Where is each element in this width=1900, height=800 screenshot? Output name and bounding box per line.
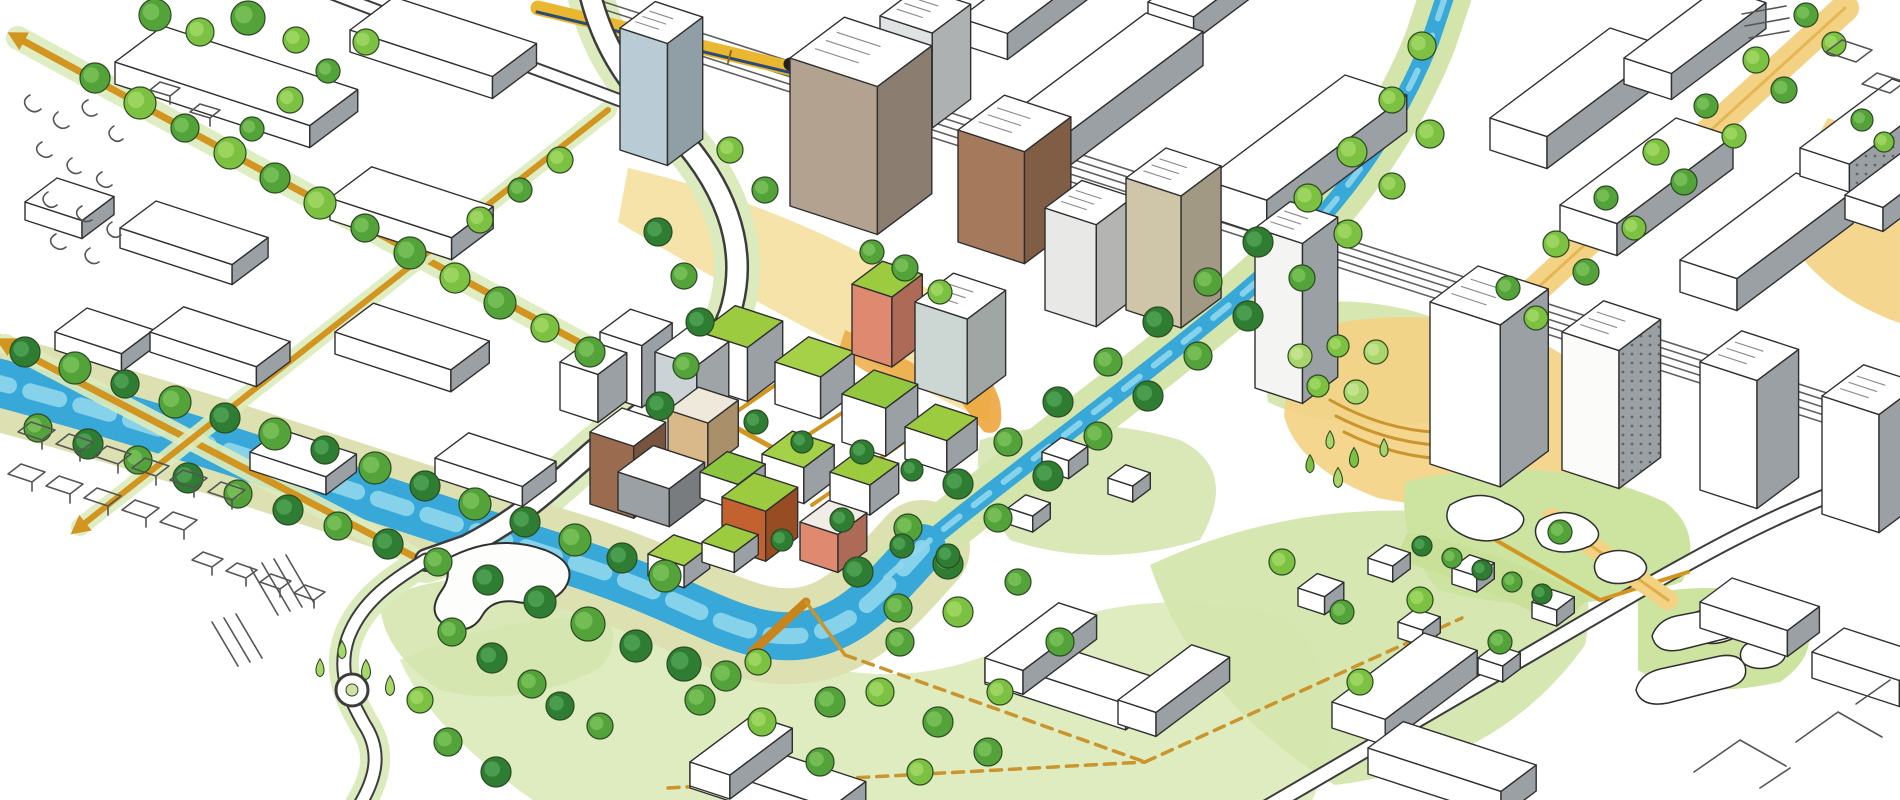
tree-highlight xyxy=(218,141,235,158)
tree-highlight xyxy=(243,120,255,132)
tree-highlight xyxy=(1774,81,1788,95)
tree-highlight xyxy=(1725,127,1737,139)
tree-highlight xyxy=(714,665,730,681)
tree-highlight xyxy=(521,674,536,689)
tree-highlight xyxy=(83,67,99,83)
tree-highlight xyxy=(846,561,862,577)
building-wall-sw xyxy=(1700,362,1757,509)
tree-highlight xyxy=(1246,231,1262,247)
tree-highlight xyxy=(13,341,29,357)
tree-highlight xyxy=(1310,378,1321,389)
tree-highlight xyxy=(314,440,329,455)
tree-highlight xyxy=(748,653,762,667)
tree-highlight xyxy=(997,432,1012,447)
tree-highlight xyxy=(63,356,80,373)
tree-highlight xyxy=(213,407,229,423)
tree-highlight xyxy=(1546,235,1560,249)
tree-highlight xyxy=(578,341,594,357)
tree-highlight xyxy=(939,547,951,559)
building-wall-sw xyxy=(1430,302,1500,487)
details-shape xyxy=(1594,550,1646,583)
tree-highlight xyxy=(280,91,294,105)
tree-highlight xyxy=(926,711,942,727)
tree-highlight xyxy=(895,259,909,273)
tree-highlight xyxy=(1674,173,1688,187)
tree-highlight xyxy=(689,312,704,327)
tree-highlight xyxy=(1625,219,1637,231)
tree-highlight xyxy=(1491,633,1503,645)
tree-highlight xyxy=(484,761,500,777)
tree-highlight xyxy=(1876,135,1886,145)
tree-highlight xyxy=(1330,338,1341,349)
tree-highlight xyxy=(263,167,279,183)
tree-highlight xyxy=(1646,143,1660,157)
tree-highlight xyxy=(488,291,505,308)
building xyxy=(1430,266,1548,487)
tree-highlight xyxy=(946,601,962,617)
tree-highlight xyxy=(1049,632,1064,647)
tree-highlight xyxy=(413,475,429,491)
tree-highlight xyxy=(1187,346,1202,361)
tree-highlight xyxy=(470,211,484,225)
tree-highlight xyxy=(513,511,529,527)
tree-highlight xyxy=(889,632,904,647)
building xyxy=(1562,301,1661,489)
building xyxy=(1126,148,1221,328)
tree-highlight xyxy=(1534,587,1544,597)
building xyxy=(1045,180,1133,326)
tree-highlight xyxy=(276,499,292,515)
tree-highlight xyxy=(1551,523,1563,535)
tree-highlight xyxy=(751,712,766,727)
tree-highlight xyxy=(977,742,992,757)
tree-highlight xyxy=(1414,539,1424,549)
tree-highlight xyxy=(853,443,865,455)
tree-highlight xyxy=(1854,112,1865,123)
tree-highlight xyxy=(910,763,924,777)
tree-highlight xyxy=(1499,279,1511,291)
tree-highlight xyxy=(463,492,480,509)
tree-highlight xyxy=(887,598,902,613)
tree-highlight xyxy=(755,181,769,195)
tree-highlight xyxy=(1297,188,1312,203)
tree-highlight xyxy=(534,318,549,333)
tree-highlight xyxy=(653,564,670,581)
building xyxy=(1822,365,1900,533)
building-wall-sw xyxy=(852,284,892,367)
tree-highlight xyxy=(308,191,325,208)
tree-highlight xyxy=(1097,352,1112,367)
building xyxy=(790,17,932,234)
tree-highlight xyxy=(563,528,580,545)
tree-highlight xyxy=(688,689,704,705)
tree-highlight xyxy=(774,532,785,543)
tree-highlight xyxy=(1046,391,1062,407)
tree-highlight xyxy=(398,241,415,258)
tree-highlight xyxy=(476,569,492,585)
tree-highlight xyxy=(818,691,834,707)
tree-highlight xyxy=(1136,385,1152,401)
tree-highlight xyxy=(327,516,342,531)
tree-highlight xyxy=(1292,269,1306,283)
tree-highlight xyxy=(676,357,690,371)
building-wall-sw xyxy=(1126,178,1181,328)
tree-highlight xyxy=(1367,343,1379,355)
tree-highlight xyxy=(1087,426,1102,441)
tree-highlight xyxy=(893,537,905,549)
tree-highlight xyxy=(511,181,523,193)
tree-highlight xyxy=(480,647,496,663)
tree-highlight xyxy=(833,511,845,523)
tree-highlight xyxy=(1008,573,1022,587)
building xyxy=(620,2,703,166)
tree-highlight xyxy=(946,473,962,489)
tree-highlight xyxy=(1272,553,1286,567)
building-wall-sw xyxy=(1045,208,1096,327)
tree-highlight xyxy=(286,31,300,45)
tree-highlight xyxy=(1411,36,1426,51)
tree-highlight xyxy=(174,118,189,133)
building-wall-sw xyxy=(790,58,877,235)
tree-highlight xyxy=(1337,224,1352,239)
tree-highlight xyxy=(794,434,805,445)
tree-highlight xyxy=(720,141,734,155)
tree-highlight xyxy=(176,467,192,483)
tree-highlight xyxy=(114,374,129,389)
tree-highlight xyxy=(575,612,593,630)
tree-highlight xyxy=(674,267,688,281)
tree-highlight xyxy=(319,62,331,74)
tree-highlight xyxy=(143,3,160,20)
tree-highlight xyxy=(747,413,759,425)
tree-highlight xyxy=(128,91,145,108)
tree-highlight xyxy=(1419,124,1434,139)
tree-highlight xyxy=(1291,347,1303,359)
masterplan-canvas: Hand-drawn urban masterplan aerial sketc… xyxy=(0,0,1900,800)
tree-highlight xyxy=(1350,673,1364,687)
tree-highlight xyxy=(1797,6,1809,18)
tree-highlight xyxy=(363,456,380,473)
masterplan-illustration xyxy=(0,0,1900,800)
tree-highlight xyxy=(610,547,626,563)
tree-highlight xyxy=(1197,272,1212,287)
tree-highlight xyxy=(897,518,912,533)
tree-highlight xyxy=(863,243,875,255)
tree-highlight xyxy=(1576,263,1590,277)
tree-highlight xyxy=(904,462,915,473)
tree-highlight xyxy=(1410,591,1424,605)
tree-highlight xyxy=(550,151,564,165)
tree-highlight xyxy=(1597,189,1609,201)
tree-highlight xyxy=(869,682,884,697)
tree-highlight xyxy=(354,218,369,233)
road xyxy=(346,684,358,696)
tree-highlight xyxy=(1347,383,1359,395)
tree-highlight xyxy=(1340,141,1356,157)
tree-highlight xyxy=(671,652,689,670)
tree-highlight xyxy=(590,717,604,731)
tree-highlight xyxy=(356,33,370,47)
tree-highlight xyxy=(410,691,424,705)
building-wall-sw xyxy=(1562,332,1619,489)
tree-highlight xyxy=(1382,177,1396,191)
tree-highlight xyxy=(649,396,664,411)
tree-highlight xyxy=(235,6,253,24)
tree-highlight xyxy=(931,283,943,295)
building-wall-sw xyxy=(620,28,668,166)
tree-highlight xyxy=(376,533,392,549)
tree-highlight xyxy=(263,422,280,439)
tree-highlight xyxy=(1474,563,1484,573)
tree-highlight xyxy=(1746,51,1760,65)
tree-highlight xyxy=(1527,309,1539,321)
tree-highlight xyxy=(441,622,456,637)
building xyxy=(1700,331,1799,509)
tree-highlight xyxy=(1146,311,1162,327)
building-wall-sw xyxy=(915,302,967,404)
tree-highlight xyxy=(990,683,1004,697)
tree-highlight xyxy=(647,222,662,237)
tree-highlight xyxy=(987,508,1002,523)
tree-highlight xyxy=(189,22,204,37)
tree-highlight xyxy=(1382,91,1396,105)
building-wall-sw xyxy=(958,130,1025,264)
tree-highlight xyxy=(427,552,442,567)
tree-highlight xyxy=(1697,97,1709,109)
tree-highlight xyxy=(809,752,824,767)
tree-highlight xyxy=(1036,465,1052,481)
tree-highlight xyxy=(443,267,459,283)
tree-highlight xyxy=(437,732,452,747)
tree-highlight xyxy=(549,696,564,711)
tree-highlight xyxy=(1333,603,1345,615)
tree-highlight xyxy=(1504,575,1514,585)
tree-highlight xyxy=(1444,551,1454,561)
tree-highlight xyxy=(163,390,180,407)
tree-highlight xyxy=(1236,305,1252,321)
building-wall-sw xyxy=(1822,396,1879,533)
tree-highlight xyxy=(528,590,545,607)
tree-highlight xyxy=(624,634,641,651)
